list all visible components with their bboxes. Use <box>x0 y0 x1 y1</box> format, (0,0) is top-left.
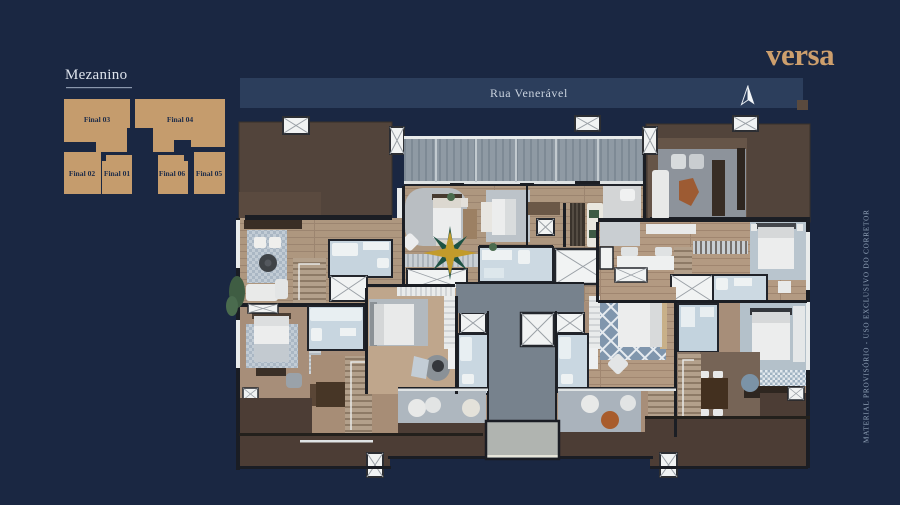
svg-text:Rua Venerável: Rua Venerável <box>490 86 568 100</box>
svg-text:Final 02: Final 02 <box>69 169 96 178</box>
svg-text:Mezanino: Mezanino <box>65 67 127 83</box>
svg-text:Final 05: Final 05 <box>196 169 223 178</box>
svg-text:MATERIAL PROVISÓRIO - USO EXCL: MATERIAL PROVISÓRIO - USO EXCLUSIVO DO C… <box>861 209 871 443</box>
svg-text:versa: versa <box>766 37 835 72</box>
svg-text:Final 03: Final 03 <box>84 115 111 124</box>
svg-text:Final 01: Final 01 <box>104 169 131 178</box>
svg-text:Final 04: Final 04 <box>167 115 194 124</box>
svg-text:Final 06: Final 06 <box>159 169 186 178</box>
